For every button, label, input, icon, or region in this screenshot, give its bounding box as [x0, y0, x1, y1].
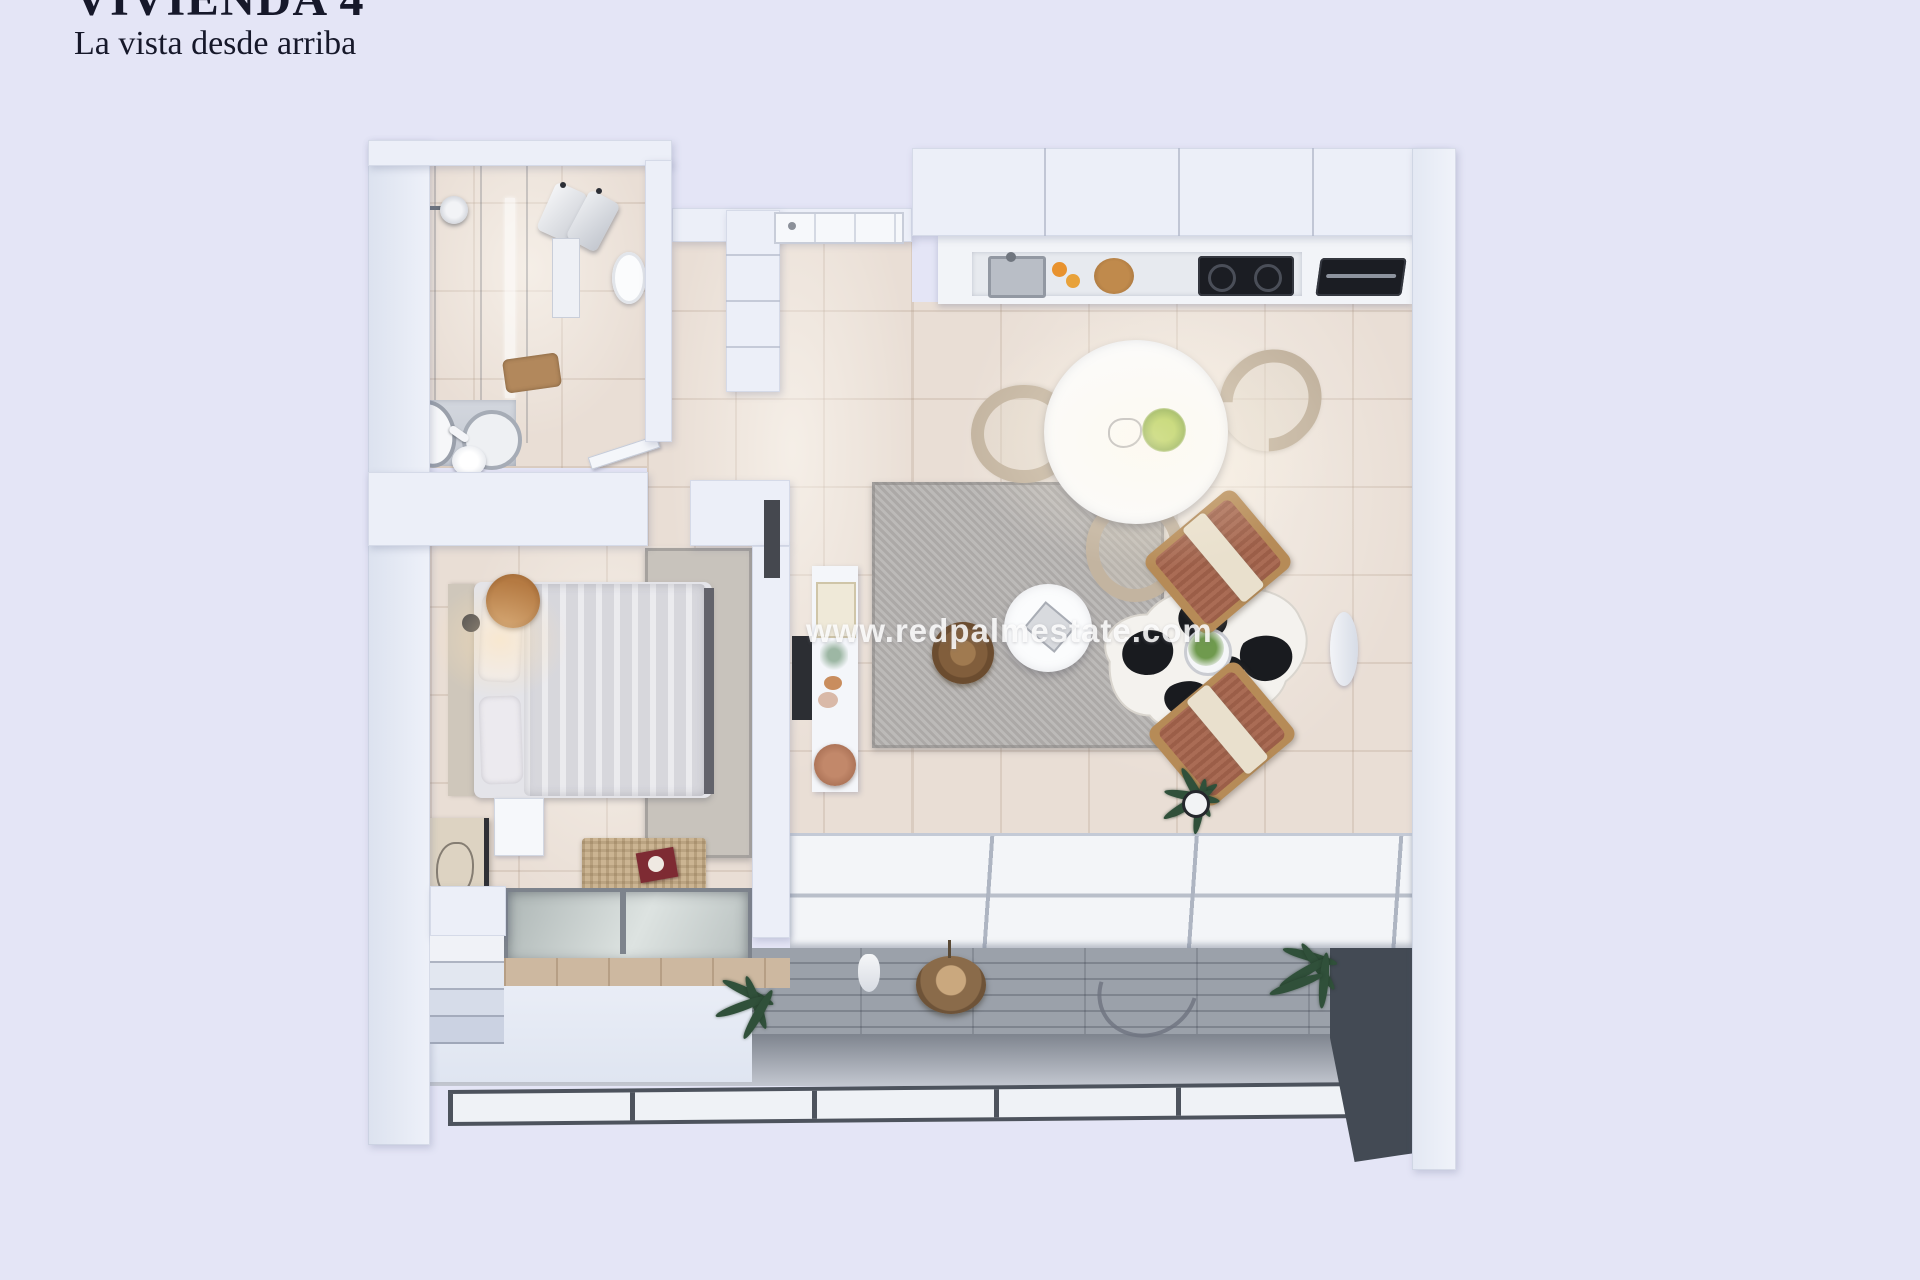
wall-lamp: [462, 614, 480, 632]
left-outer-wall: [368, 140, 430, 1145]
stair-step: [430, 990, 504, 1017]
bathroom-tall-cabinet: [552, 238, 580, 318]
toilet: [612, 252, 646, 304]
glass-floor-mullion: [620, 890, 626, 954]
towel-hook: [596, 188, 602, 194]
egg-chair-cord: [948, 940, 951, 958]
floor-plant: [1150, 762, 1240, 842]
stair-step: [430, 963, 504, 990]
burner: [1208, 264, 1236, 292]
right-outer-wall: [1412, 148, 1456, 1170]
glass-floor: [504, 888, 752, 966]
console-terracotta-pot: [814, 744, 856, 786]
sink-tap: [1006, 252, 1016, 262]
red-book-circle: [648, 856, 664, 872]
towel-hook: [560, 182, 566, 188]
door-handle: [788, 222, 796, 230]
terrace-pavers: [790, 833, 1412, 948]
cooktop: [1198, 256, 1294, 296]
staircase: [430, 936, 506, 1046]
entry-wardrobe: [726, 210, 780, 392]
divider-wall: [752, 546, 790, 938]
bathroom-right-wall: [645, 160, 672, 442]
table-plant: [1142, 408, 1186, 452]
hanging-ornament: [858, 954, 880, 992]
watermark: www.redpalmestate.com: [806, 612, 1213, 650]
oven-handle: [1326, 274, 1397, 278]
console-shell: [824, 676, 842, 690]
bedroom-ledge: [430, 886, 506, 936]
bed-duvet: [524, 584, 706, 796]
plant-pot: [1182, 790, 1210, 818]
kitchen-upper-cabinets: [912, 148, 1448, 236]
nightstand: [494, 798, 544, 856]
hanging-egg-chair: [916, 956, 986, 1014]
cutting-board: [1094, 258, 1134, 294]
console-shell: [818, 692, 838, 708]
top-wall: [368, 140, 672, 166]
burner: [1254, 264, 1282, 292]
patio-glass-balustrade: [448, 1082, 1372, 1126]
floor-vase: [1330, 612, 1358, 686]
patio-plant-left: [700, 968, 810, 1048]
shower-head: [440, 196, 468, 224]
bed-pillow: [478, 695, 523, 784]
tv-panel: [764, 500, 780, 578]
orange-fruit: [1066, 274, 1080, 288]
bedside-table-round: [486, 574, 540, 628]
bed-footboard: [704, 588, 714, 794]
floorplan-scene: VIVIENDA 4 La vista desde arriba: [0, 0, 1920, 1280]
stair-step: [430, 1017, 504, 1044]
kitchen-sink: [988, 256, 1046, 298]
patio-plant-right: [1256, 936, 1376, 1016]
oven: [1315, 258, 1406, 296]
orange-fruit: [1052, 262, 1067, 277]
bedroom-top-wall: [368, 472, 648, 546]
stair-step: [430, 936, 504, 963]
